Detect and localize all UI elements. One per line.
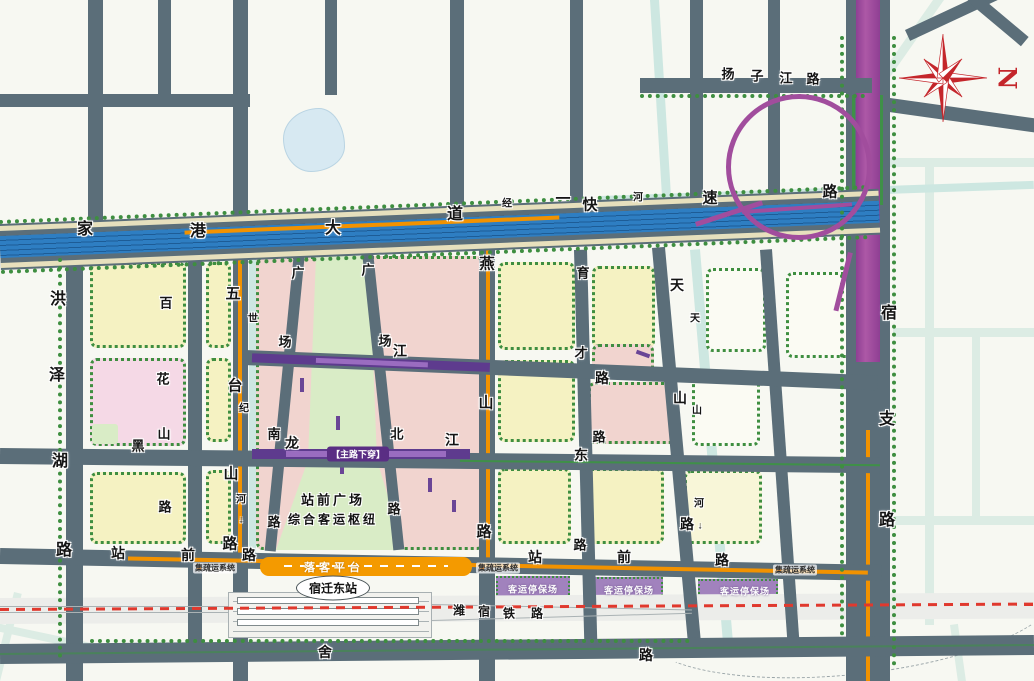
label-she-lu: 路 [639,645,653,665]
label-guangchang-nan-lu: 广 [291,263,304,282]
label-wutaishan-lu: 台 [227,375,242,396]
label-hongzehu-lu: 泽 [49,361,65,385]
label-tianshan-river: 山 [692,402,702,417]
label-tianshan-lu: 天 [670,275,684,295]
label-yucai-lu: 育 [576,263,589,282]
label-guangchang-nan-lu: 场 [278,332,291,351]
collector-system-label: → 集疏运系统 [476,563,520,574]
label-hongzehu-lu: 湖 [52,447,68,471]
label-jingyi-expressway: 一 [555,188,570,209]
label-jiang-lu: 江 [393,341,407,361]
label-misc: 路 [573,535,586,554]
label-jingyi-expressway: 路 [822,181,837,202]
label-guangchang-nan-lu: 南 [267,424,280,443]
label-zhanqian-lu-east: 站 [528,547,542,567]
label-wutaishan-lu: 山 [223,463,238,484]
label-tianshan-river: 河 [694,495,704,510]
depot-label: 客运停保场 [508,583,558,596]
label-guangchang-bei-lu: 广 [361,260,374,279]
label-weisu-railway: 铁 [503,605,515,622]
label-jingyi-river: 河 [633,189,643,204]
label-tianshan-lu: 路 [680,514,694,534]
label-shiji-river: 纪 [239,400,249,415]
label-shiji-river: 河 [236,491,246,506]
label-baihuashan-lu: 百 [159,293,172,312]
label-shiji-river: ↓ [239,515,244,526]
label-jiagang-dadao: 港 [190,217,206,241]
label-zhanqian-lu-west: 站 [111,543,125,563]
label-suzhi-lu: 支 [879,405,895,429]
collector-system-label: → 集疏运系统 [773,565,817,576]
depot-label: 客运停保场 [720,585,770,598]
planning-map: N 【主路下穿】 落客平台 宿迁东站 站前广场 综合客运枢纽 家港大道一快速路经… [0,0,1034,681]
label-yucai-lu: 才 [574,343,587,362]
depot-label: 客运停保场 [604,584,654,597]
label-jingyi-expressway: 快 [582,194,597,215]
label-suzhi-lu: 宿 [881,299,897,323]
label-zhanqian-lu-west: 路 [242,545,256,565]
label-longjiang-dong-lu: 东 [574,445,588,465]
label-wutaishan-lu: 路 [222,533,237,554]
label-jiagang-dadao: 道 [447,200,463,224]
label-guangchang-bei-lu: 场 [378,331,391,350]
label-shiji-river: 世 [248,310,258,325]
collector-system-label: → 集疏运系统 [193,563,237,574]
label-baihuashan-lu: 山 [157,424,170,443]
label-weisu-railway: 潍 [453,602,465,619]
label-misc: 黑 [131,436,144,455]
label-hongzehu-lu: 洪 [50,285,66,309]
label-longjiang-dong-lu: 江 [445,430,459,450]
label-tianshan-river: 天 [690,310,700,325]
label-jiang-lu: 路 [595,368,609,388]
label-wutaishan-lu: 五 [225,283,240,304]
label-yanshan-lu: 山 [478,392,493,413]
label-baihuashan-lu: 花 [156,369,169,388]
label-guangchang-bei-lu: 北 [390,424,403,443]
label-zhanqian-lu-east: 路 [715,550,729,570]
label-yucai-lu: 路 [592,427,605,446]
label-she-lu: 舍 [318,642,332,662]
label-yangzijiang-lu: 路 [806,69,819,88]
label-tianshan-lu: 山 [673,388,687,408]
label-baihuashan-lu: 路 [158,497,171,516]
label-longjiang-dong-lu: 龙 [285,433,299,453]
label-yanshan-lu: 燕 [479,253,494,274]
label-guangchang-nan-lu: 路 [267,512,280,531]
label-zhanqian-lu-east: 前 [617,547,631,567]
label-weisu-railway: 宿 [478,603,490,620]
label-yanshan-lu: 路 [476,521,491,542]
road-labels-layer: 家港大道一快速路经河扬子江路洪泽湖路百花山路五台山路世纪河↓广场南路广场北路燕山… [0,0,1034,681]
label-jingyi-expressway: 速 [702,187,717,208]
label-jiagang-dadao: 家 [77,215,93,239]
label-weisu-railway: 路 [531,605,543,622]
label-yangzijiang-lu: 扬 [721,64,734,83]
label-tianshan-river: ↓ [698,521,703,532]
label-suzhi-lu: 路 [879,506,895,530]
label-yangzijiang-lu: 江 [779,68,792,87]
label-jingyi-river: 经 [502,195,512,210]
label-hongzehu-lu: 路 [56,536,72,560]
label-jiagang-dadao: 大 [325,214,341,238]
label-guangchang-bei-lu: 路 [387,499,400,518]
label-yangzijiang-lu: 子 [750,66,763,85]
